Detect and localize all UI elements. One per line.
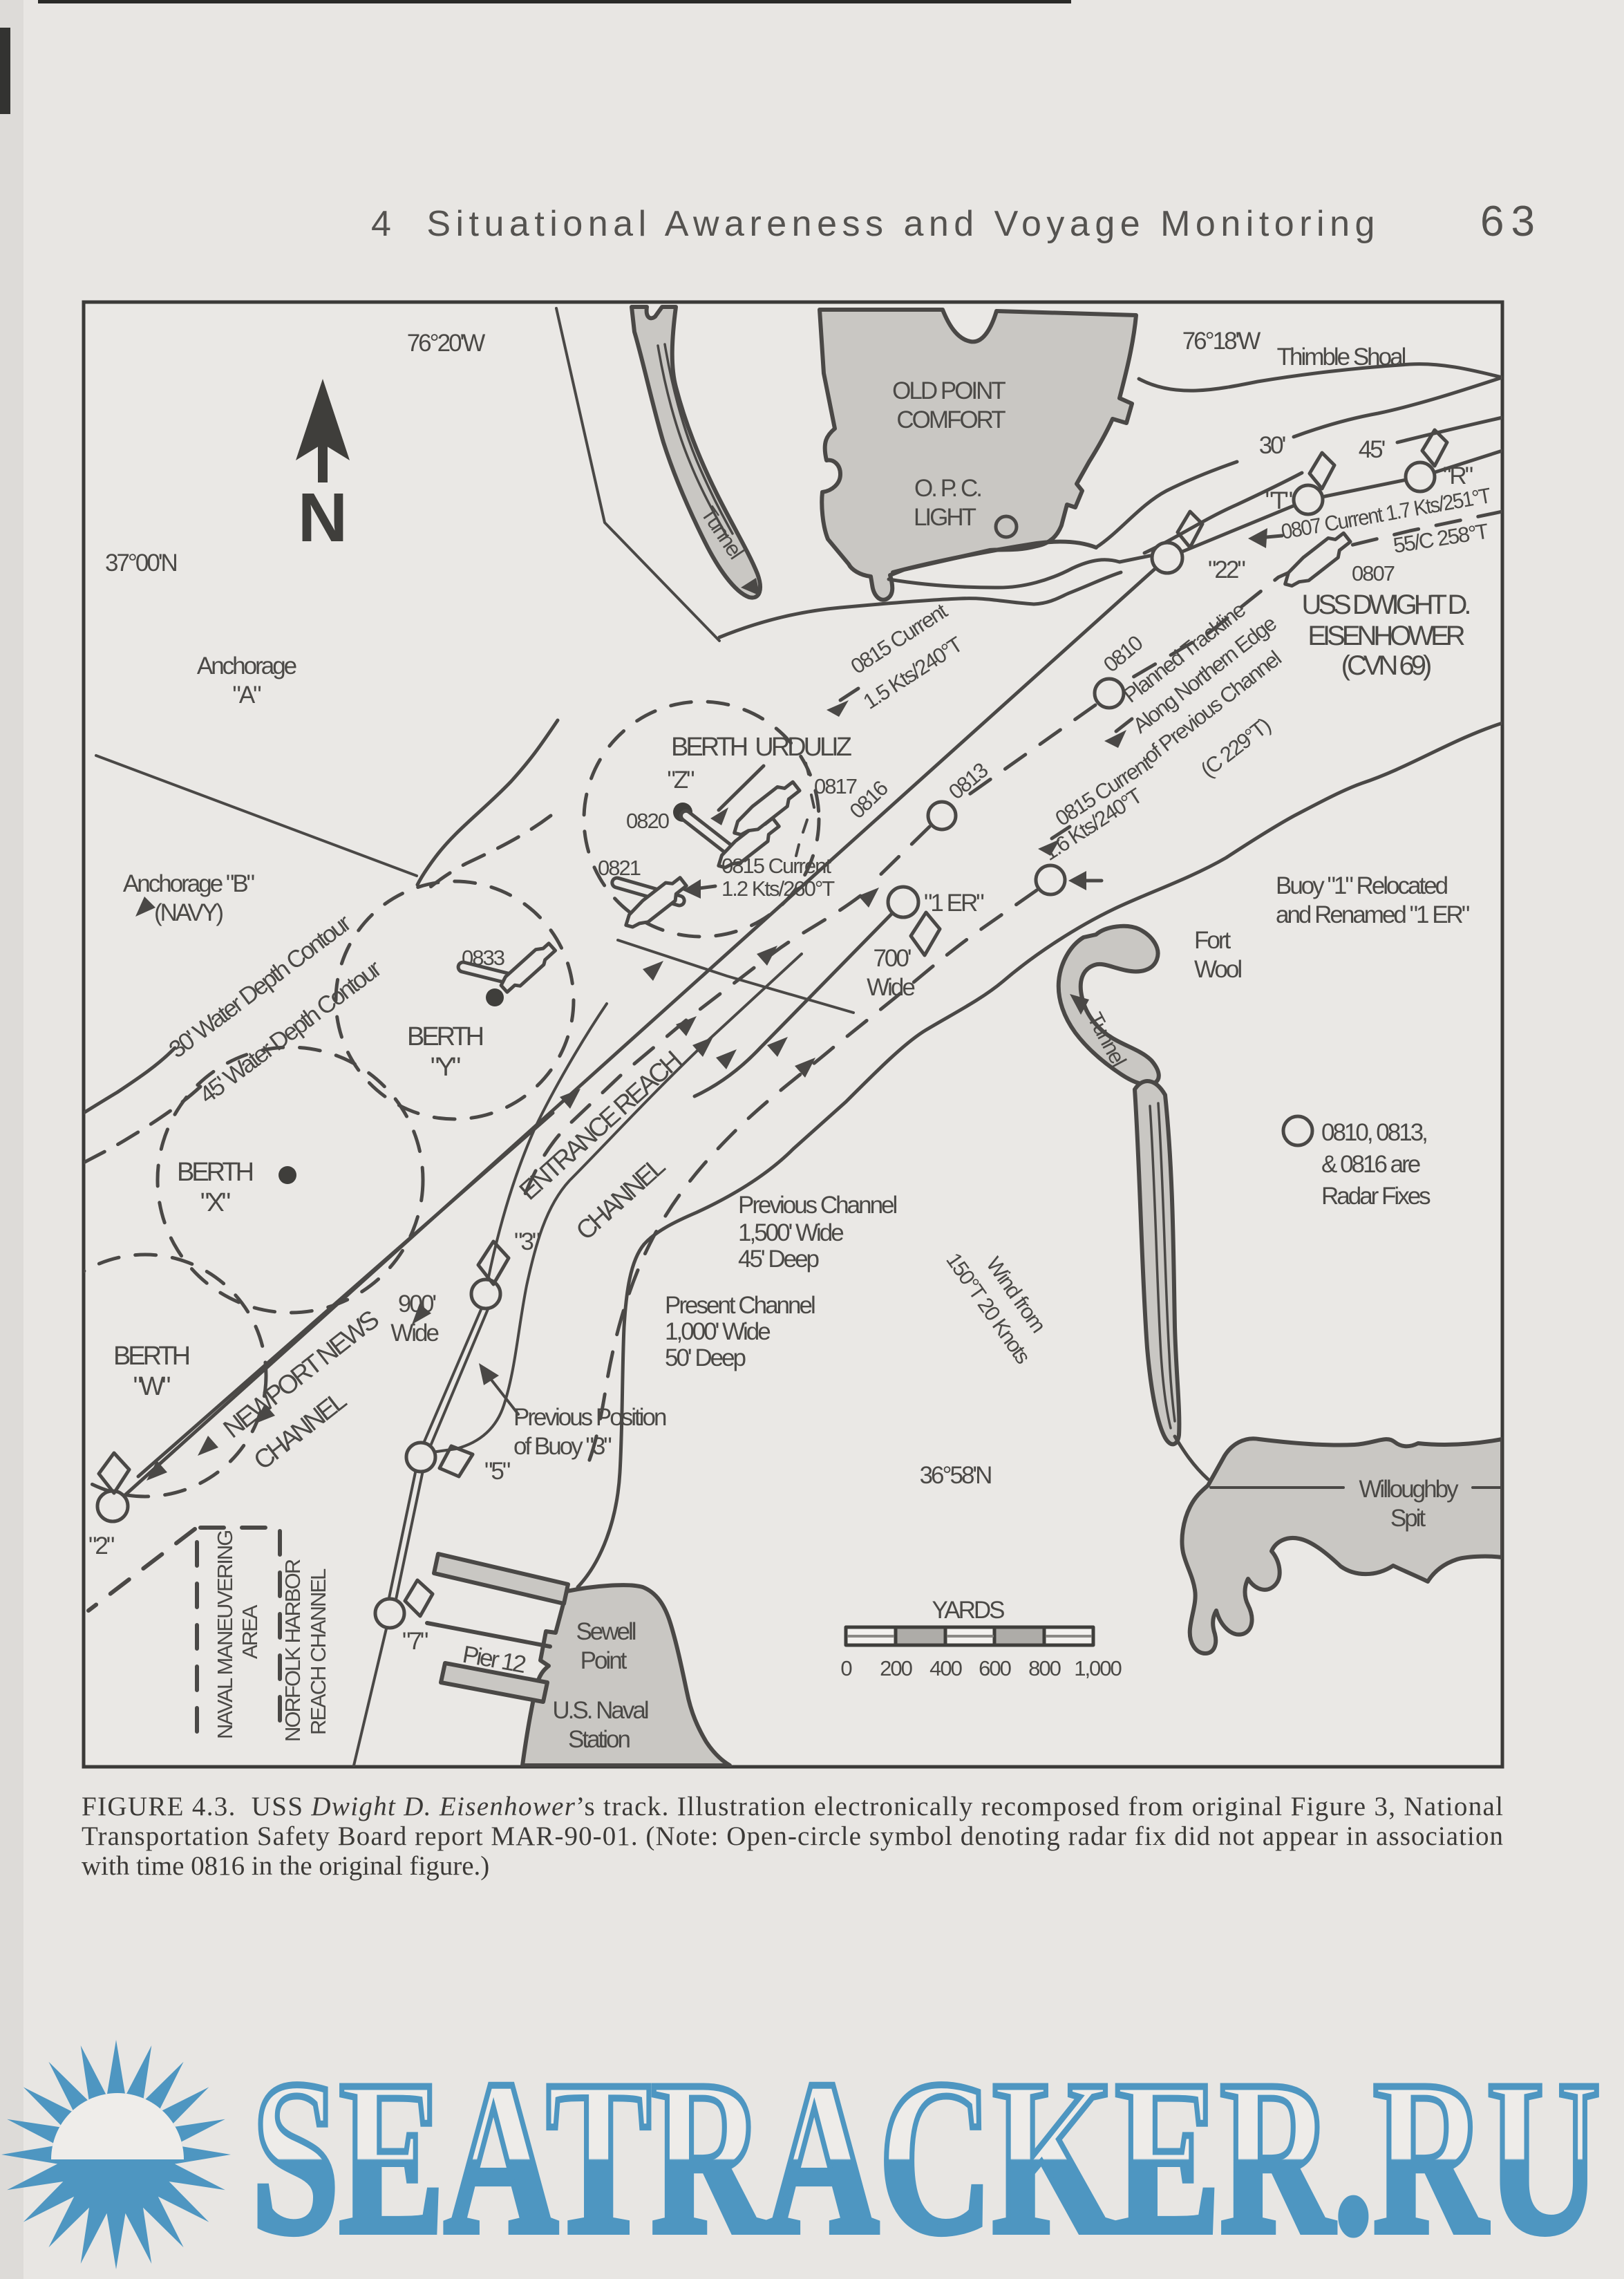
svg-text:BERTH URDULIZ: BERTH URDULIZ bbox=[671, 733, 852, 762]
svg-text:OLD POINT: OLD POINT bbox=[892, 377, 1005, 404]
svg-text:63: 63 bbox=[1480, 198, 1542, 245]
svg-text:SEATRACKER.RU: SEATRACKER.RU bbox=[252, 2035, 1601, 2279]
svg-text:"Z": "Z" bbox=[667, 767, 694, 794]
svg-text:(CVN 69): (CVN 69) bbox=[1341, 650, 1431, 681]
svg-text:Transportation Safety Board re: Transportation Safety Board report MAR-9… bbox=[82, 1821, 1503, 1851]
svg-text:"T": "T" bbox=[1265, 487, 1292, 514]
svg-text:"22": "22" bbox=[1208, 556, 1245, 583]
svg-text:and Renamed "1 ER": and Renamed "1 ER" bbox=[1276, 901, 1469, 928]
svg-text:AREA: AREA bbox=[238, 1604, 262, 1659]
svg-text:"R": "R" bbox=[1443, 462, 1473, 489]
svg-text:EISENHOWER: EISENHOWER bbox=[1307, 621, 1464, 651]
svg-text:Radar Fixes: Radar Fixes bbox=[1321, 1183, 1431, 1210]
svg-text:"1 ER": "1 ER" bbox=[924, 890, 983, 917]
svg-text:BERTH: BERTH bbox=[113, 1342, 189, 1371]
svg-text:Sewell: Sewell bbox=[576, 1618, 635, 1645]
svg-text:"X": "X" bbox=[200, 1188, 230, 1217]
svg-text:Wide: Wide bbox=[390, 1320, 438, 1347]
svg-text:200: 200 bbox=[880, 1656, 912, 1680]
svg-text:0807: 0807 bbox=[1352, 561, 1395, 585]
svg-text:Spit: Spit bbox=[1390, 1505, 1426, 1532]
svg-text:"2": "2" bbox=[88, 1532, 114, 1559]
svg-text:50' Deep: 50' Deep bbox=[665, 1344, 746, 1371]
svg-text:"A": "A" bbox=[232, 682, 261, 709]
svg-text:Anchorage "B": Anchorage "B" bbox=[123, 870, 254, 897]
svg-text:1.2 Kts/260°T: 1.2 Kts/260°T bbox=[721, 876, 835, 901]
svg-text:Anchorage: Anchorage bbox=[197, 653, 296, 679]
svg-text:Station: Station bbox=[568, 1726, 630, 1753]
svg-text:Present Channel: Present Channel bbox=[665, 1292, 815, 1319]
svg-text:Fort: Fort bbox=[1194, 927, 1231, 954]
svg-text:O. P. C.: O. P. C. bbox=[914, 475, 981, 502]
svg-text:NAVAL MANEUVERING: NAVAL MANEUVERING bbox=[213, 1531, 237, 1739]
svg-text:1,000' Wide: 1,000' Wide bbox=[665, 1318, 770, 1345]
svg-text:"Y": "Y" bbox=[431, 1053, 460, 1082]
svg-text:Previous Channel: Previous Channel bbox=[738, 1192, 896, 1219]
svg-text:0815 Current: 0815 Current bbox=[721, 854, 831, 878]
svg-text:76°18'W: 76°18'W bbox=[1182, 328, 1261, 355]
svg-text:COMFORT: COMFORT bbox=[896, 406, 1005, 433]
svg-text:& 0816 are: & 0816 are bbox=[1321, 1151, 1420, 1178]
svg-text:Buoy "1" Relocated: Buoy "1" Relocated bbox=[1276, 872, 1448, 899]
svg-text:Wool: Wool bbox=[1194, 956, 1241, 983]
svg-text:"W": "W" bbox=[133, 1372, 170, 1401]
svg-text:0: 0 bbox=[840, 1656, 852, 1680]
svg-text:"7": "7" bbox=[402, 1628, 428, 1655]
svg-text:37°00'N: 37°00'N bbox=[105, 550, 177, 576]
svg-text:"3": "3" bbox=[514, 1228, 540, 1255]
svg-text:Point: Point bbox=[580, 1647, 627, 1674]
svg-text:USS DWIGHT D.: USS DWIGHT D. bbox=[1302, 590, 1470, 620]
svg-text:with time 0816 in the original: with time 0816 in the original figure.) bbox=[82, 1851, 489, 1881]
svg-text:Thimble Shoal: Thimble Shoal bbox=[1277, 344, 1406, 371]
svg-text:45': 45' bbox=[1359, 436, 1385, 463]
svg-text:N: N bbox=[298, 479, 348, 556]
svg-text:"5": "5" bbox=[484, 1458, 510, 1485]
svg-text:36°58'N: 36°58'N bbox=[920, 1462, 992, 1489]
svg-text:1,500' Wide: 1,500' Wide bbox=[738, 1219, 843, 1246]
svg-text:U.S. Naval: U.S. Naval bbox=[552, 1697, 648, 1724]
svg-text:NORFOLK HARBOR: NORFOLK HARBOR bbox=[281, 1559, 305, 1742]
svg-text:BERTH: BERTH bbox=[407, 1022, 483, 1051]
svg-text:700': 700' bbox=[873, 945, 910, 972]
svg-text:45' Deep: 45' Deep bbox=[738, 1246, 819, 1273]
svg-text:Previous Position: Previous Position bbox=[513, 1404, 666, 1431]
svg-text:1,000: 1,000 bbox=[1074, 1656, 1122, 1680]
svg-text:76°20'W: 76°20'W bbox=[407, 330, 486, 357]
svg-text:0810, 0813,: 0810, 0813, bbox=[1321, 1119, 1426, 1146]
svg-text:BERTH: BERTH bbox=[177, 1158, 253, 1187]
svg-text:YARDS: YARDS bbox=[932, 1597, 1005, 1624]
svg-text:0820: 0820 bbox=[626, 809, 670, 833]
svg-text:30': 30' bbox=[1259, 432, 1285, 459]
svg-text:400: 400 bbox=[929, 1656, 962, 1680]
svg-text:(NAVY): (NAVY) bbox=[154, 899, 223, 926]
svg-text:4 Situational Awareness and V: 4 Situational Awareness and Voyage Monit… bbox=[371, 204, 1380, 244]
svg-text:of Buoy "3": of Buoy "3" bbox=[513, 1433, 611, 1460]
svg-text:600: 600 bbox=[979, 1656, 1011, 1680]
svg-text:LIGHT: LIGHT bbox=[914, 504, 976, 531]
svg-text:800: 800 bbox=[1028, 1656, 1061, 1680]
svg-text:0821: 0821 bbox=[598, 856, 641, 880]
svg-text:REACH CHANNEL: REACH CHANNEL bbox=[306, 1568, 330, 1735]
svg-text:Willoughby: Willoughby bbox=[1359, 1476, 1459, 1503]
svg-text:0817: 0817 bbox=[814, 774, 857, 798]
svg-text:Wide: Wide bbox=[867, 974, 914, 1001]
